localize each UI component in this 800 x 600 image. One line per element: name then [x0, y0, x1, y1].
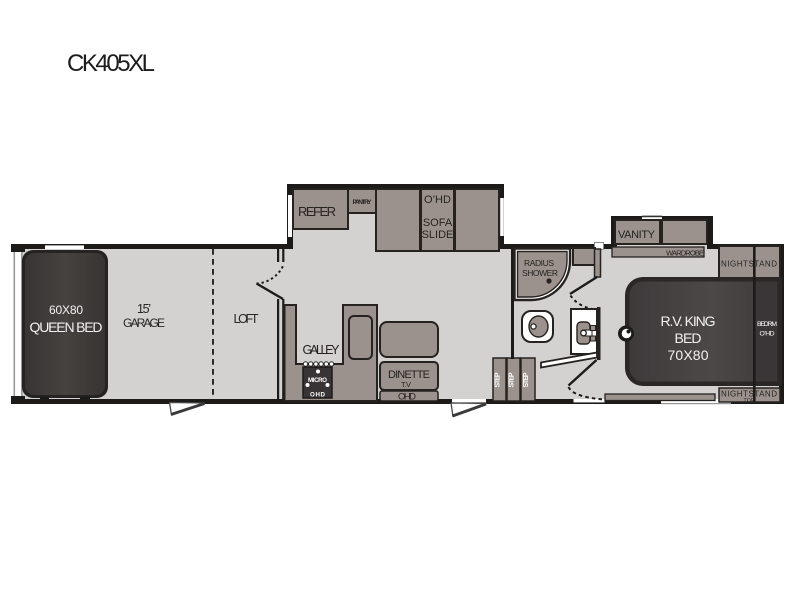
- svg-text:STEP: STEP: [495, 372, 502, 387]
- svg-text:NIGHTSTAND: NIGHTSTAND: [721, 260, 777, 269]
- svg-text:GARAGE: GARAGE: [123, 316, 165, 330]
- svg-text:R.V. KING: R.V. KING: [661, 313, 716, 329]
- svg-text:60X80: 60X80: [49, 303, 83, 317]
- svg-text:PANTRY: PANTRY: [353, 199, 373, 206]
- svg-text:15’: 15’: [137, 302, 151, 316]
- svg-text:70X80: 70X80: [668, 347, 709, 363]
- svg-text:T.V: T.V: [401, 380, 411, 389]
- svg-text:O’HD: O’HD: [424, 194, 451, 206]
- svg-text:WARDROBE: WARDROBE: [666, 249, 704, 258]
- svg-text:O’HD: O’HD: [760, 331, 775, 338]
- svg-text:VANITY: VANITY: [618, 229, 656, 241]
- svg-text:SLIDE: SLIDE: [422, 229, 454, 241]
- svg-text:BEDRM: BEDRM: [757, 321, 777, 328]
- svg-text:STEP: STEP: [509, 372, 516, 387]
- svg-text:GALLEY: GALLEY: [303, 343, 341, 357]
- svg-text:SHOWER: SHOWER: [522, 268, 558, 278]
- svg-text:RADIUS: RADIUS: [524, 258, 554, 268]
- svg-text:LOFT: LOFT: [234, 312, 259, 326]
- svg-text:OHD: OHD: [310, 392, 326, 399]
- svg-text:REFER: REFER: [298, 204, 336, 219]
- svg-text:MICRO: MICRO: [308, 377, 327, 384]
- svg-text:SOFA: SOFA: [423, 217, 453, 229]
- svg-text:CK405XL: CK405XL: [67, 50, 155, 77]
- svg-text:BED: BED: [675, 330, 702, 346]
- svg-text:STEP: STEP: [523, 372, 530, 387]
- svg-text:QUEEN BED: QUEEN BED: [30, 319, 103, 335]
- svg-text:OHD: OHD: [398, 392, 416, 403]
